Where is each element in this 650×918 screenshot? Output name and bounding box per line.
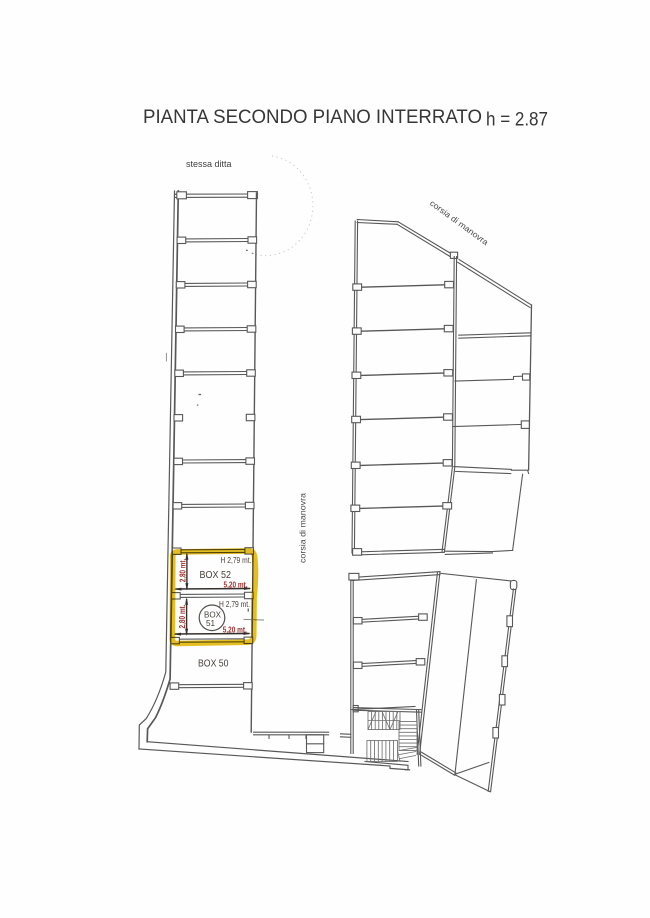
svg-text:2,80 mt.: 2,80 mt. bbox=[178, 559, 187, 583]
svg-text:H 2,79 mt.: H 2,79 mt. bbox=[219, 600, 250, 609]
svg-text:corsia di manovra: corsia di manovra bbox=[299, 493, 308, 563]
svg-text:51: 51 bbox=[206, 619, 216, 628]
svg-text:PIANTA SECONDO PIANO INTERRATO: PIANTA SECONDO PIANO INTERRATO bbox=[143, 106, 482, 128]
svg-text:stessa ditta: stessa ditta bbox=[186, 159, 232, 169]
svg-text:h = 2.87: h = 2.87 bbox=[486, 109, 548, 131]
svg-text:H 2,79 mt.: H 2,79 mt. bbox=[221, 556, 252, 565]
svg-text:2,80 mt.: 2,80 mt. bbox=[178, 605, 187, 629]
svg-text:BOX 50: BOX 50 bbox=[198, 659, 229, 670]
